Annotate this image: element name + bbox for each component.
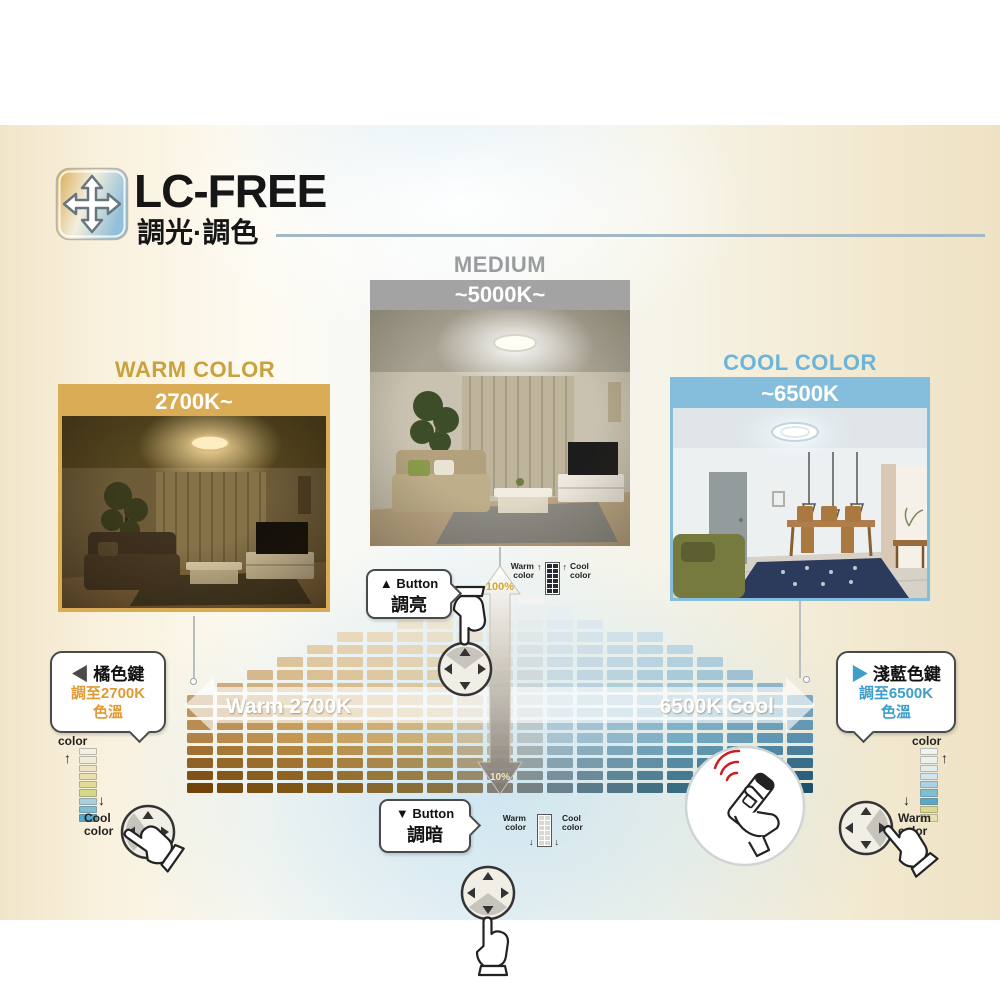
right-triangle-icon: ▶ xyxy=(851,665,868,684)
cool-banner: ~6500K xyxy=(673,380,927,408)
mini-bar-cell xyxy=(539,836,544,840)
grid-tile xyxy=(637,783,663,793)
mini-bar-cell xyxy=(539,841,544,845)
color-scale-segment xyxy=(79,748,97,755)
grid-tile xyxy=(607,746,633,756)
mini-cool-label-top: Cool color xyxy=(570,562,596,580)
header-rule xyxy=(276,234,985,237)
grid-tile xyxy=(607,783,633,793)
grid-tile xyxy=(307,645,333,655)
grid-tile xyxy=(367,657,393,667)
grid-tile xyxy=(607,645,633,655)
dim-callout: ▼ Button 調暗 xyxy=(379,799,471,853)
warm-banner: 2700K~ xyxy=(62,388,326,416)
grid-tile xyxy=(397,620,423,630)
grid-tile xyxy=(187,746,213,756)
grid-tile xyxy=(277,783,303,793)
mini-bar-cell xyxy=(539,831,544,835)
down-triangle-icon: ▼ xyxy=(396,806,409,821)
grid-tile xyxy=(577,657,603,667)
up-arrow-icon: ↑ xyxy=(563,562,568,572)
grid-tile xyxy=(247,746,273,756)
mini-bar-cell xyxy=(547,564,552,568)
mini-bar-cell xyxy=(553,574,558,578)
down-arrow-icon: ↓ xyxy=(529,837,534,847)
mini-bar-cell xyxy=(553,589,558,593)
grid-tile xyxy=(337,771,363,781)
warm-label: WARM COLOR xyxy=(60,357,330,383)
grid-tile xyxy=(277,657,303,667)
color-scale-segment xyxy=(920,773,938,780)
brighten-callout: ▲ Button 調亮 xyxy=(366,569,452,619)
lighting-infographic: LC-FREE 調光·調色 MEDIUM ~5000K~ xyxy=(0,0,1000,1000)
grid-tile xyxy=(397,771,423,781)
grid-tile xyxy=(307,657,333,667)
color-scale-segment xyxy=(79,765,97,772)
color-scale-segment xyxy=(920,798,938,805)
page-title: LC-FREE xyxy=(134,164,326,218)
mini-bar-cell xyxy=(539,821,544,825)
grid-tile xyxy=(667,645,693,655)
mini-warm-label-bottom: Warm color xyxy=(500,814,526,832)
mini-bar-cell xyxy=(547,574,552,578)
mini-bar-cell xyxy=(547,584,552,588)
medium-label: MEDIUM xyxy=(370,252,630,278)
hand-holding-remote-icon xyxy=(683,744,807,868)
lightblue-key-line3: 色溫 xyxy=(838,704,954,723)
grid-tile xyxy=(367,746,393,756)
warm-room-photo xyxy=(62,416,326,608)
grid-tile xyxy=(277,746,303,756)
axis-label-warm: Warm 2700K xyxy=(226,695,351,718)
grid-tile xyxy=(577,783,603,793)
mini-warm-label-top: Warm color xyxy=(508,562,534,580)
grid-tile xyxy=(217,783,243,793)
grid-tile xyxy=(667,657,693,667)
color-scale-segment xyxy=(79,756,97,763)
mini-bar-cell xyxy=(545,841,550,845)
lightblue-key-callout: ▶ 淺藍色鍵 調至6500K 色溫 xyxy=(836,651,956,733)
mini-cool-label-bottom: Cool color xyxy=(562,814,588,832)
grid-tile xyxy=(247,758,273,768)
dim-keyword: Button xyxy=(412,806,454,821)
grid-tile xyxy=(397,632,423,642)
mini-bar-cell xyxy=(545,826,550,830)
mini-bar-cell xyxy=(547,579,552,583)
brighten-keyword: Button xyxy=(396,576,438,591)
grid-tile xyxy=(637,758,663,768)
up-arrow-icon: ↑ xyxy=(941,750,948,766)
grid-tile xyxy=(307,746,333,756)
grid-tile xyxy=(337,645,363,655)
grid-tile xyxy=(247,771,273,781)
mini-bar-cell xyxy=(547,589,552,593)
grid-tile xyxy=(217,771,243,781)
grid-tile xyxy=(307,783,333,793)
grid-tile xyxy=(337,783,363,793)
grid-tile xyxy=(577,758,603,768)
mini-bar-cell xyxy=(553,564,558,568)
grid-tile xyxy=(607,758,633,768)
grid-tile xyxy=(247,783,273,793)
axis-label-cool: 6500K Cool xyxy=(660,695,774,718)
color-scale-segment xyxy=(79,781,97,788)
mini-bar-cell xyxy=(539,816,544,820)
medium-banner: ~5000K~ xyxy=(370,280,630,310)
grid-tile xyxy=(217,758,243,768)
grid-tile xyxy=(367,758,393,768)
grid-tile xyxy=(607,771,633,781)
grid-tile xyxy=(187,758,213,768)
color-scale-segment xyxy=(79,798,97,805)
grid-tile xyxy=(577,620,603,630)
medium-room-photo xyxy=(370,310,630,546)
grid-tile xyxy=(697,657,723,667)
grid-tile xyxy=(337,632,363,642)
cool-photo-block: ~6500K xyxy=(670,377,930,601)
grid-tile xyxy=(367,783,393,793)
grid-tile xyxy=(337,657,363,667)
grid-tile xyxy=(637,746,663,756)
cool-room-photo xyxy=(673,408,927,598)
grid-tile xyxy=(277,758,303,768)
mini-legend-top: Warm color ↑ ↑ Cool color xyxy=(508,562,596,595)
grid-tile xyxy=(637,632,663,642)
grid-tile xyxy=(307,758,333,768)
orange-key-line3: 色溫 xyxy=(52,704,164,723)
medium-photo-block: ~5000K~ xyxy=(370,280,630,546)
color-scale-segment xyxy=(79,773,97,780)
grid-tile xyxy=(187,783,213,793)
page-subtitle: 調光·調色 xyxy=(137,211,258,251)
grid-tile xyxy=(637,657,663,667)
grid-tile xyxy=(277,771,303,781)
grid-tile xyxy=(187,771,213,781)
grid-tile xyxy=(337,758,363,768)
dim-action: 調暗 xyxy=(381,821,469,847)
mini-bar-cell xyxy=(545,836,550,840)
color-scale-segment xyxy=(79,789,97,796)
grid-tile xyxy=(577,632,603,642)
grid-tile xyxy=(337,746,363,756)
grid-tile xyxy=(637,771,663,781)
up-arrow-icon: ↑ xyxy=(64,750,71,766)
mini-bar-cell xyxy=(553,569,558,573)
mini-color-bar-dark xyxy=(545,562,560,595)
grid-tile xyxy=(397,746,423,756)
grid-tile xyxy=(307,771,333,781)
mini-color-bar-light xyxy=(537,814,552,847)
up-arrow-icon: ↑ xyxy=(537,562,542,572)
four-direction-arrows-icon xyxy=(55,167,129,241)
warm-photo-block: 2700K~ xyxy=(58,384,330,612)
lightblue-key-title: 淺藍色鍵 xyxy=(873,665,941,684)
grid-tile xyxy=(397,645,423,655)
grid-tile xyxy=(577,746,603,756)
left-triangle-icon: ◀ xyxy=(72,665,89,684)
grid-tile xyxy=(397,657,423,667)
color-scale-segment xyxy=(920,781,938,788)
grid-tile xyxy=(637,645,663,655)
mini-bar-cell xyxy=(545,831,550,835)
grid-tile xyxy=(577,771,603,781)
mini-bar-cell xyxy=(545,821,550,825)
color-scale-segment xyxy=(920,789,938,796)
orange-key-line2: 調至2700K xyxy=(52,685,164,704)
up-triangle-icon: ▲ xyxy=(380,576,393,591)
orange-key-callout: ◀ 橘色鍵 調至2700K 色溫 xyxy=(50,651,166,733)
down-arrow-icon: ↓ xyxy=(98,792,105,808)
color-scale-segment xyxy=(920,756,938,763)
mini-legend-bottom: Warm color ↓ ↓ Cool color xyxy=(500,814,588,847)
grid-tile xyxy=(397,783,423,793)
grid-tile xyxy=(607,632,633,642)
mini-bar-cell xyxy=(539,826,544,830)
color-scale-segment xyxy=(920,765,938,772)
grid-tile xyxy=(367,632,393,642)
mini-bar-cell xyxy=(545,816,550,820)
color-scale-segment xyxy=(920,748,938,755)
cool-label: COOL COLOR xyxy=(670,350,930,376)
grid-tile xyxy=(607,657,633,667)
grid-tile xyxy=(577,645,603,655)
grid-tile xyxy=(367,771,393,781)
mini-bar-cell xyxy=(553,584,558,588)
grid-tile xyxy=(217,746,243,756)
mini-bar-cell xyxy=(553,579,558,583)
orange-key-title: 橘色鍵 xyxy=(93,665,144,684)
down-arrow-icon: ↓ xyxy=(555,837,560,847)
grid-tile xyxy=(397,758,423,768)
mini-bar-cell xyxy=(547,569,552,573)
grid-tile xyxy=(367,645,393,655)
lightblue-key-line2: 調至6500K xyxy=(838,685,954,704)
brighten-action: 調亮 xyxy=(368,591,450,617)
